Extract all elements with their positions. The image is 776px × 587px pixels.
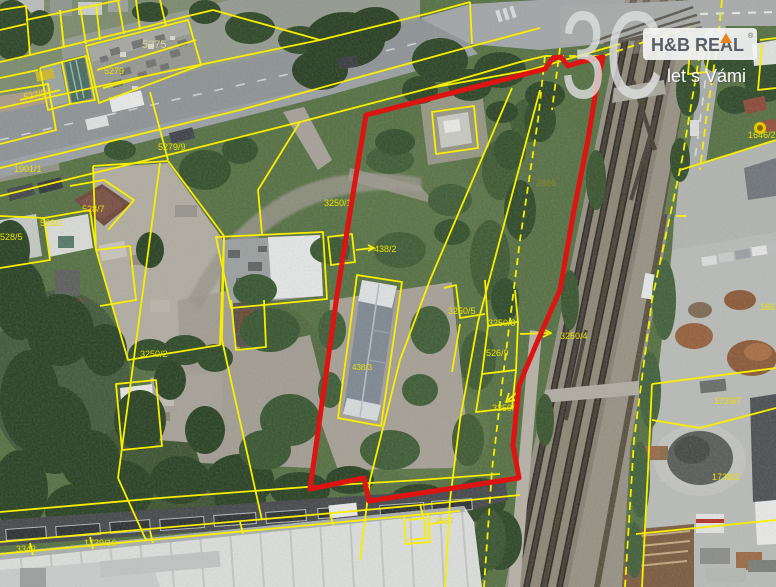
svg-text:5279: 5279	[104, 66, 124, 76]
svg-text:1901/1: 1901/1	[14, 164, 42, 174]
svg-text:1739/2: 1739/2	[712, 472, 740, 482]
svg-text:528/5: 528/5	[0, 232, 23, 242]
svg-text:let s Vámi: let s Vámi	[667, 66, 746, 86]
svg-text:3250/2: 3250/2	[140, 349, 168, 359]
svg-text:1739/16: 1739/16	[84, 538, 117, 548]
svg-text:3250/1: 3250/1	[324, 198, 352, 208]
svg-text:3967: 3967	[434, 516, 454, 526]
svg-text:1739/7: 1739/7	[714, 396, 742, 406]
svg-text:528/7: 528/7	[82, 204, 105, 214]
svg-text:H&B REAL: H&B REAL	[651, 35, 744, 55]
svg-text:3250/4: 3250/4	[560, 331, 588, 341]
svg-text:5279/9: 5279/9	[158, 142, 186, 152]
svg-text:3250/5: 3250/5	[448, 306, 476, 316]
svg-text:3343: 3343	[16, 544, 36, 554]
svg-text:166: 166	[760, 302, 775, 312]
svg-text:438/2: 438/2	[374, 244, 397, 254]
svg-text:®: ®	[748, 32, 754, 40]
svg-text:3886: 3886	[536, 178, 556, 188]
svg-text:528/2: 528/2	[40, 218, 63, 228]
svg-text:438/3: 438/3	[352, 363, 373, 372]
svg-text:3C: 3C	[561, 0, 663, 125]
svg-text:3250/8: 3250/8	[488, 318, 516, 328]
svg-text:526/9: 526/9	[486, 348, 509, 358]
svg-text:5275: 5275	[142, 39, 166, 51]
